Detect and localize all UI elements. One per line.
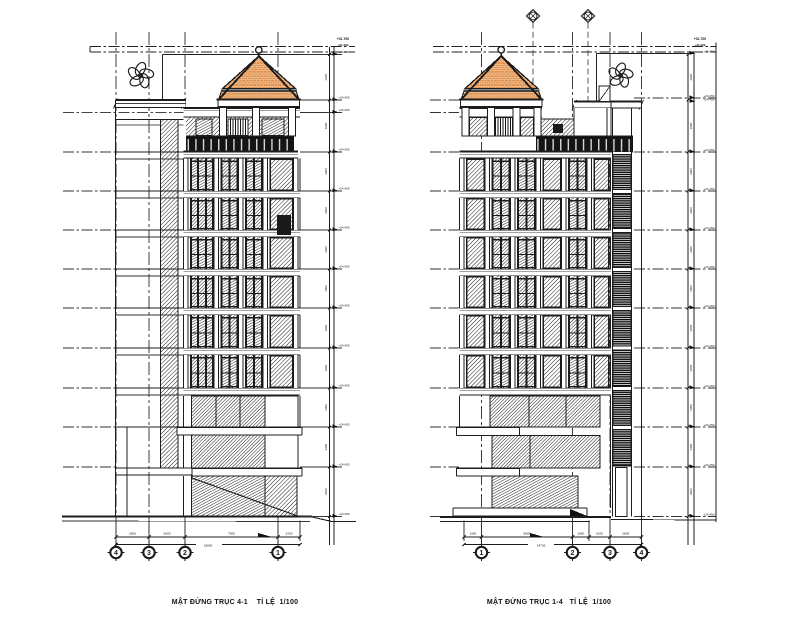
svg-text:1: 1 — [480, 550, 484, 557]
svg-text:15800: 15800 — [204, 544, 213, 548]
svg-text:MẬT ĐỨNG TRỤC 4-1 TỈ LỆ 1/: MẬT ĐỨNG TRỤC 4-1 TỈ LỆ 1/100 — [172, 597, 298, 606]
svg-text:2200: 2200 — [286, 532, 293, 536]
svg-text:3900: 3900 — [324, 443, 328, 450]
svg-text:3900: 3900 — [324, 285, 328, 292]
svg-text:3900: 3900 — [689, 364, 693, 371]
svg-text:3900: 3900 — [324, 364, 328, 371]
svg-text:3900: 3900 — [324, 122, 328, 129]
svg-text:3900: 3900 — [324, 404, 328, 411]
svg-text:+24.450: +24.450 — [704, 463, 715, 467]
svg-text:MẬT ĐỨNG TRỤC 1-4 TỈ LỆ 1/1: MẬT ĐỨNG TRỤC 1-4 TỈ LỆ 1/100 — [487, 597, 611, 606]
svg-text:+24.450: +24.450 — [704, 187, 715, 191]
svg-text:9085: 9085 — [524, 532, 531, 536]
svg-text:+31.200: +31.200 — [695, 43, 706, 47]
svg-text:+24.450: +24.450 — [704, 512, 715, 516]
svg-text:3900: 3900 — [689, 404, 693, 411]
svg-text:14735: 14735 — [537, 544, 546, 548]
svg-text:+24.450: +24.450 — [339, 226, 350, 230]
svg-text:+24.450: +24.450 — [704, 423, 715, 427]
svg-text:2600: 2600 — [622, 532, 629, 536]
svg-text:+24.450: +24.450 — [339, 265, 350, 269]
svg-text:3900: 3900 — [689, 168, 693, 175]
svg-text:4: 4 — [640, 550, 644, 557]
svg-text:3900: 3900 — [689, 246, 693, 253]
svg-text:3900: 3900 — [324, 207, 328, 214]
svg-text:3900: 3900 — [689, 207, 693, 214]
svg-text:1650: 1650 — [577, 532, 584, 536]
svg-text:+24.450: +24.450 — [339, 148, 350, 152]
svg-text:7500: 7500 — [228, 532, 235, 536]
svg-text:+31.700: +31.700 — [694, 37, 706, 41]
svg-text:2: 2 — [571, 550, 575, 557]
svg-text:3600: 3600 — [164, 532, 171, 536]
svg-text:+24.450: +24.450 — [339, 304, 350, 308]
svg-text:+24.450: +24.450 — [704, 49, 715, 53]
svg-text:+24.450: +24.450 — [339, 463, 350, 467]
svg-text:3: 3 — [608, 550, 612, 557]
svg-text:3900: 3900 — [324, 74, 328, 81]
svg-text:3900: 3900 — [324, 488, 328, 495]
svg-text:3900: 3900 — [689, 122, 693, 129]
svg-text:3900: 3900 — [324, 168, 328, 175]
svg-text:+24.450: +24.450 — [704, 384, 715, 388]
svg-text:1: 1 — [276, 550, 280, 557]
svg-text:+31.200: +31.200 — [338, 43, 349, 47]
svg-text:+24.450: +24.450 — [339, 512, 350, 516]
svg-text:2: 2 — [183, 550, 187, 557]
svg-text:3900: 3900 — [324, 246, 328, 253]
svg-text:3900: 3900 — [689, 324, 693, 331]
svg-text:3900: 3900 — [324, 324, 328, 331]
svg-text:+24.450: +24.450 — [704, 344, 715, 348]
svg-text:+24.450: +24.450 — [704, 304, 715, 308]
svg-text:1400: 1400 — [469, 532, 476, 536]
svg-text:+24.450: +24.450 — [339, 108, 350, 112]
svg-text:+24.450: +24.450 — [339, 96, 350, 100]
svg-text:+24.450: +24.450 — [704, 265, 715, 269]
svg-text:3900: 3900 — [689, 285, 693, 292]
svg-text:+24.450: +24.450 — [339, 50, 350, 54]
svg-text:+24.450: +24.450 — [704, 148, 715, 152]
svg-text:+24.450: +24.450 — [339, 384, 350, 388]
svg-text:+24.450: +24.450 — [704, 226, 715, 230]
svg-text:3900: 3900 — [689, 488, 693, 495]
svg-text:+24.450: +24.450 — [339, 187, 350, 191]
svg-text:3: 3 — [147, 550, 151, 557]
svg-text:2500: 2500 — [129, 532, 136, 536]
svg-text:+31.700: +31.700 — [337, 37, 349, 41]
svg-text:2100: 2100 — [596, 532, 603, 536]
svg-text:+24.450: +24.450 — [704, 97, 715, 101]
svg-text:3900: 3900 — [689, 443, 693, 450]
svg-text:4: 4 — [114, 550, 118, 557]
svg-text:+24.450: +24.450 — [339, 344, 350, 348]
svg-text:3900: 3900 — [689, 74, 693, 81]
svg-text:+24.450: +24.450 — [339, 423, 350, 427]
